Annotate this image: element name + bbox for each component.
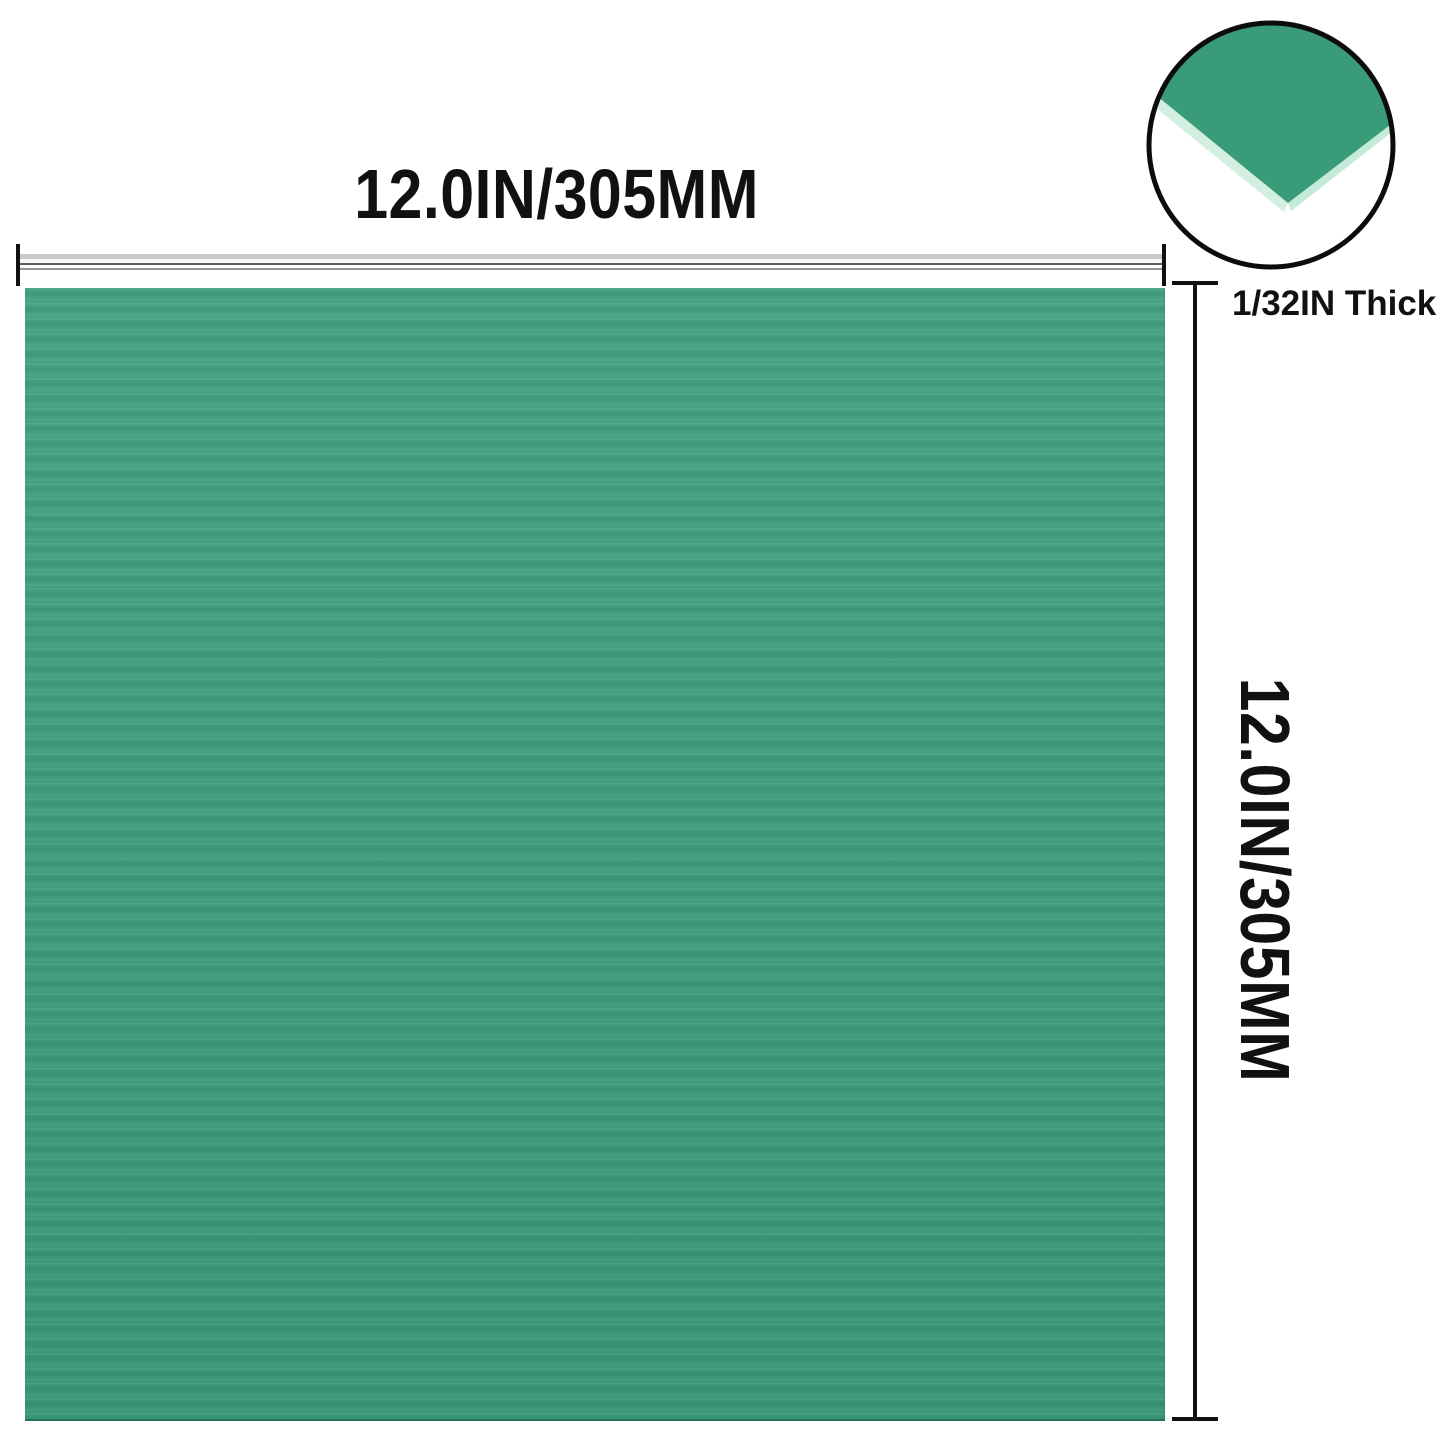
height-dimension-label-text: 12.0IN/305MM (1230, 678, 1300, 1083)
thickness-label: 1/32IN Thick (1232, 286, 1436, 321)
sheet-front-view (25, 288, 1165, 1421)
thickness-detail-inset (1142, 16, 1400, 274)
width-dimension-label: 12.0IN/305MM (0, 159, 1114, 229)
height-dimension-line (1193, 283, 1197, 1421)
width-dimension-label-text: 12.0IN/305MM (355, 159, 760, 229)
height-dim-cap-top (1172, 281, 1218, 285)
width-dimension-line (18, 254, 1165, 270)
height-dimension-label: 12.0IN/305MM (1230, 647, 1300, 1112)
diagram-canvas: 12.0IN/305MM 1/32IN Thick 12.0IN/305MM (0, 0, 1445, 1445)
height-dim-cap-bottom (1172, 1417, 1218, 1421)
inset-sheet-surface (1142, 16, 1400, 203)
width-dim-end-tick-left (16, 244, 20, 286)
